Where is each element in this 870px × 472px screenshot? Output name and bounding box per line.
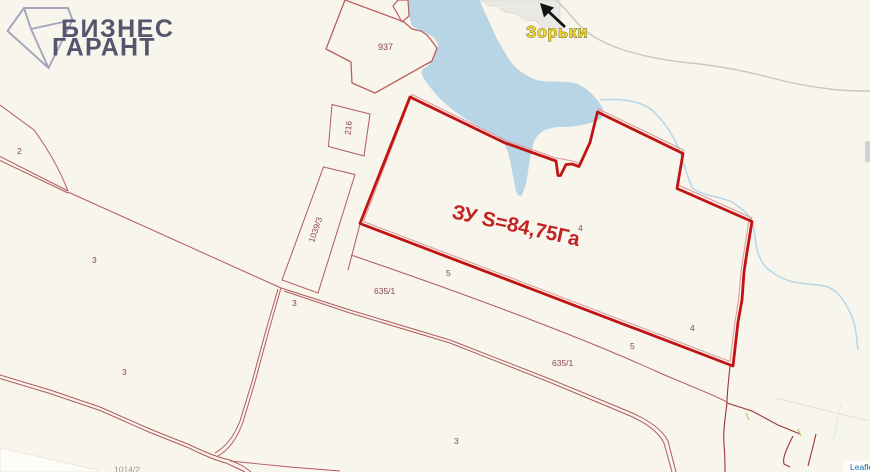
svg-text:5: 5: [630, 341, 635, 351]
svg-text:3: 3: [92, 255, 97, 265]
svg-text:Зорьки: Зорьки: [526, 24, 588, 42]
svg-text:1014/2: 1014/2: [114, 465, 140, 472]
svg-text:Leaflet: Leaflet: [850, 462, 870, 472]
svg-text:4: 4: [690, 323, 695, 333]
svg-text:4: 4: [578, 223, 583, 233]
svg-text:216: 216: [343, 120, 354, 135]
svg-text:635/1: 635/1: [552, 358, 574, 368]
svg-text:3: 3: [454, 436, 459, 446]
svg-text:ГАРАНТ: ГАРАНТ: [52, 34, 156, 62]
svg-text:3: 3: [292, 298, 297, 308]
svg-text:635/1: 635/1: [374, 286, 396, 296]
svg-text:5: 5: [446, 268, 451, 278]
svg-text:937: 937: [378, 42, 393, 52]
svg-text:2: 2: [17, 146, 22, 156]
svg-text:3: 3: [122, 367, 127, 377]
